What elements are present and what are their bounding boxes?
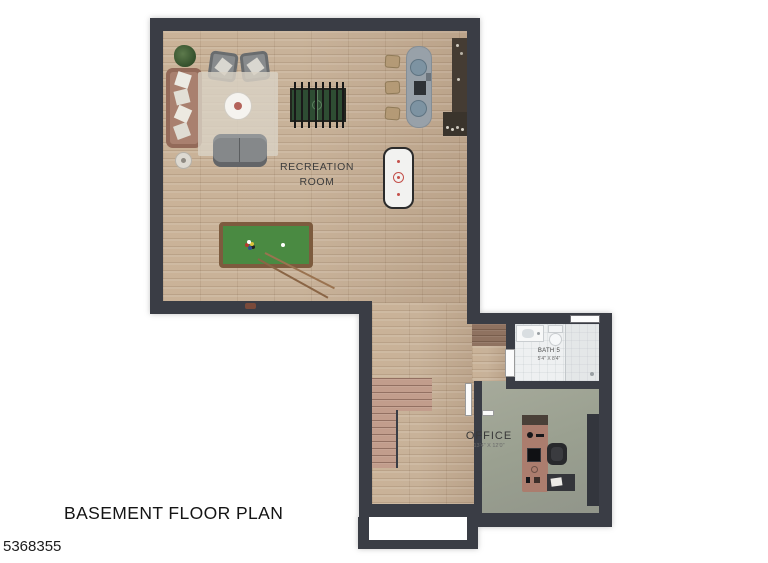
bath-entry-floor (472, 346, 506, 381)
sofa-pillow (173, 122, 191, 140)
wall-outer-right (599, 313, 612, 527)
bathroom-door (505, 349, 515, 377)
shelf-bottle (460, 52, 463, 55)
recreation-room-label: RECREATION ROOM (267, 160, 367, 190)
shelf-bottle (456, 44, 459, 47)
desk-accessory (536, 434, 544, 437)
pool-table (219, 222, 313, 268)
floor-plan (0, 0, 768, 563)
desk-item (534, 477, 540, 483)
toilet-tank (548, 325, 563, 333)
bar-appliance (414, 81, 426, 95)
vanity-sink-bowl (522, 329, 534, 338)
sofa-pillow (174, 89, 191, 106)
desk-hutch (522, 415, 548, 425)
window-well (358, 517, 478, 549)
bar-sink (410, 100, 427, 117)
desk-item (526, 477, 530, 483)
office-window-bay (587, 414, 599, 506)
pool-ball-rack (247, 240, 251, 244)
foosball-table (290, 88, 346, 122)
wall-lower-left (359, 301, 372, 517)
plan-title: BASEMENT FLOOR PLAN (64, 503, 283, 524)
desk-monitor (527, 448, 541, 462)
foosball-rod (342, 82, 344, 128)
side-table (175, 152, 192, 169)
foosball-rod (308, 82, 310, 128)
bathroom-dimensions: 5'4" X 8'4" (519, 356, 579, 362)
foosball-rod (294, 82, 296, 128)
sofa (166, 68, 202, 148)
coffee-table (224, 92, 252, 120)
toilet-bowl (549, 333, 562, 346)
bathroom-label: BATH 5 (519, 348, 579, 354)
wall-shelving-unit (452, 38, 467, 116)
vanity-faucet (537, 332, 540, 335)
foosball-rod (336, 82, 338, 128)
wall-rec-bottom (150, 301, 372, 314)
sofa-pillow (174, 71, 192, 89)
credenza-papers (550, 477, 562, 486)
sofa-pillow (174, 105, 192, 123)
cue-ball (281, 243, 285, 247)
cabinet-bottle (456, 126, 459, 129)
bathroom-window (570, 315, 600, 323)
air-hockey-table (383, 147, 414, 209)
cabinet-bottle (451, 128, 454, 131)
bar-counter (406, 46, 432, 128)
desk-dish (531, 466, 538, 473)
wall-vent (245, 303, 256, 309)
bar-tap (426, 73, 431, 81)
office-dimensions: 13'4" X 12'0" (454, 443, 524, 449)
wall-top (150, 18, 480, 31)
loveseat-cushion-split (239, 138, 240, 162)
wall-hall-bottom (359, 504, 482, 517)
wall-bath-left-upper (506, 313, 515, 349)
bar-stool (385, 81, 401, 95)
foosball-center-circle (312, 100, 322, 110)
bar-sink (410, 59, 427, 76)
bathroom-vanity (516, 325, 544, 342)
cabinet-bottle (461, 128, 464, 131)
side-table-decor (181, 158, 186, 163)
office-desk (522, 415, 548, 492)
wall-left (150, 18, 163, 314)
coffee-table-tray (234, 102, 242, 110)
shelf-bottle (457, 78, 460, 81)
loveseat (213, 134, 267, 167)
wall-office-bottom (474, 513, 612, 527)
air-hockey-mallet (397, 193, 400, 196)
wall-bath-bottom (506, 381, 599, 389)
desk-lamp (527, 432, 533, 438)
bar-stool (384, 106, 400, 120)
bar-stool (385, 54, 401, 68)
office-label: OFFICE (454, 430, 524, 442)
office-door-stub (482, 410, 494, 416)
foosball-rod (322, 82, 324, 128)
office-chair (547, 443, 567, 465)
wall-cabinet (443, 112, 467, 136)
foosball-rod (329, 82, 331, 128)
foosball-rod (315, 82, 317, 128)
shower-drain (590, 372, 594, 376)
wall-rec-right (467, 18, 480, 324)
stair-railing (396, 410, 398, 468)
listing-id: 5368355 (3, 538, 61, 555)
air-hockey-mallet (397, 160, 400, 163)
cabinet-bottle (446, 126, 449, 129)
office-credenza (547, 474, 575, 491)
foosball-rod (301, 82, 303, 128)
office-door-leaf (465, 383, 472, 416)
air-hockey-puck (397, 176, 400, 179)
potted-plant (174, 45, 196, 67)
closet-floor (472, 324, 506, 346)
stairs-upper-flight (398, 378, 432, 411)
chair-seat (551, 447, 563, 461)
stairs-lower-flight (372, 378, 398, 468)
